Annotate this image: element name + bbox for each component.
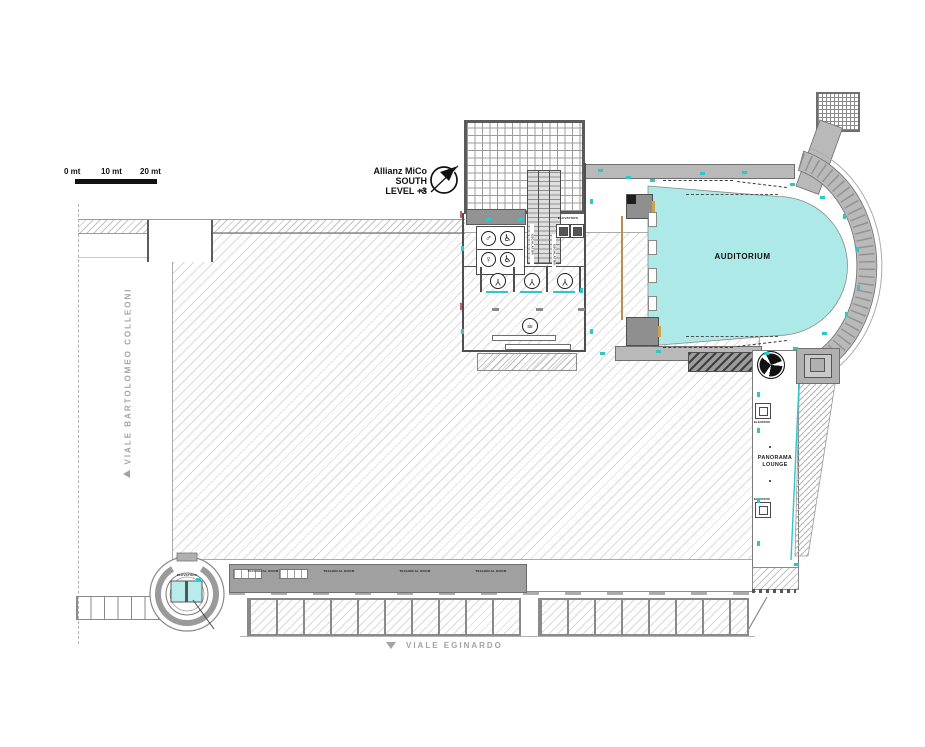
title-line: SOUTH	[340, 176, 427, 186]
floor-plan: ♂ ♿ ♀ ♿ Y Y Y ☕ ESCALATOR ESCALATOR ELEV…	[0, 0, 925, 747]
rotunda-elevators-label: ELEVATORS	[168, 574, 206, 578]
panorama-lounge-label: PANORAMA LOUNGE	[753, 455, 797, 468]
scale-mark: 20 mt	[140, 167, 161, 176]
technical-room-label: TECHNICAL ROOM	[474, 570, 508, 574]
lounge-dot	[769, 446, 771, 448]
auditorium-door	[648, 296, 657, 311]
auditorium-door	[648, 212, 657, 227]
panorama-elevator	[755, 502, 771, 518]
auditorium-door	[648, 240, 657, 255]
auditorium-label: AUDITORIUM	[700, 252, 785, 261]
auditorium-door	[648, 268, 657, 283]
auditorium-shape	[648, 186, 848, 346]
lounge-dot	[769, 480, 771, 482]
street-arrow-south	[386, 642, 396, 649]
technical-room-label: TECHNICAL ROOM	[398, 570, 432, 574]
technical-room-label: TECHNICAL ROOM	[322, 570, 356, 574]
stage-block-south	[626, 317, 659, 346]
scale-mark: 0 mt	[64, 167, 80, 176]
title-line: LEVEL +3	[340, 186, 427, 196]
north-compass-icon	[431, 166, 458, 193]
title-line: Allianz MiCo	[340, 166, 427, 176]
seating-row	[686, 336, 778, 337]
terrace-wedge	[795, 360, 838, 556]
street-label-west: VIALE BARTOLOMEO COLLEONI	[124, 335, 133, 465]
title-block: Allianz MiCo SOUTH LEVEL +3	[340, 166, 427, 196]
rotunda	[150, 553, 224, 631]
seating-row	[686, 194, 778, 195]
scale-bar: 0 mt 10 mt 20 mt	[64, 167, 174, 187]
technical-room-windows	[279, 569, 308, 579]
street-label-south: VIALE EGINARDO	[386, 639, 503, 651]
scale-mark: 10 mt	[101, 167, 122, 176]
seating-row	[663, 180, 733, 181]
plan-svg-layer	[0, 0, 925, 747]
elevator-machine-room	[796, 348, 840, 384]
seating-row	[663, 347, 733, 348]
technical-room-label: TECHNICAL ROOM	[246, 570, 280, 574]
scale-bar-rule	[75, 179, 157, 184]
arcade-end-line	[747, 597, 767, 632]
panorama-elevator	[755, 403, 771, 419]
street-arrow-west	[123, 470, 130, 478]
street-name-south: VIALE EGINARDO	[406, 641, 503, 650]
spiral-stair-icon	[757, 351, 785, 379]
panorama-elevator-label: ELEVATOR	[754, 420, 770, 424]
